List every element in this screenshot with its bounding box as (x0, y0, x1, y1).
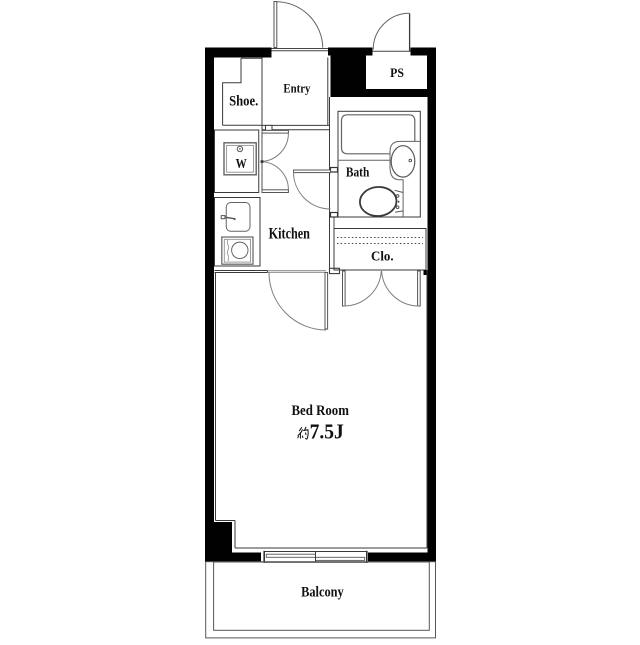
svg-text:Entry: Entry (283, 80, 310, 95)
svg-text:Shoe.: Shoe. (229, 94, 258, 110)
svg-text:7.5J: 7.5J (310, 420, 344, 444)
svg-text:Balcony: Balcony (301, 585, 344, 601)
svg-text:Clo.: Clo. (371, 249, 394, 264)
svg-text:PS: PS (390, 66, 404, 80)
svg-text:Bath: Bath (346, 165, 370, 180)
svg-text:Kitchen: Kitchen (269, 226, 311, 243)
svg-text:W: W (236, 157, 247, 172)
svg-text:Bed Room: Bed Room (291, 403, 349, 419)
